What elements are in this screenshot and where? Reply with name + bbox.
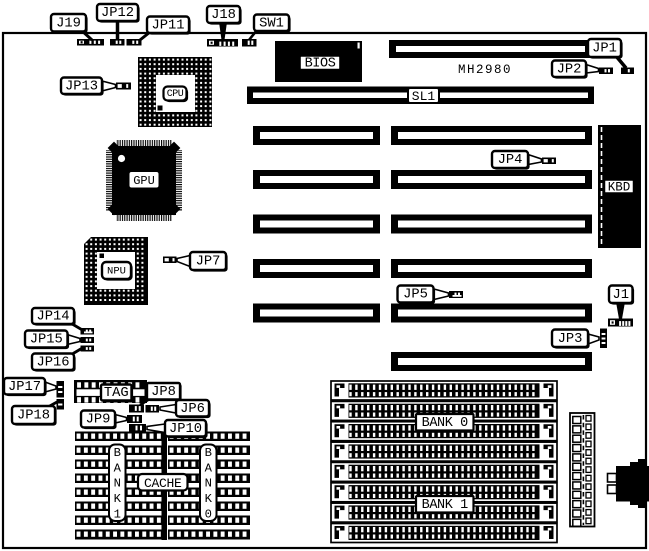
svg-text:JP16: JP16 xyxy=(36,355,69,370)
svg-text:J1: J1 xyxy=(612,288,629,303)
svg-text:J18: J18 xyxy=(211,8,236,23)
svg-text:JP14: JP14 xyxy=(36,310,69,325)
svg-text:NPU: NPU xyxy=(107,265,126,277)
svg-text:SL1: SL1 xyxy=(412,89,436,104)
svg-text:JP11: JP11 xyxy=(151,18,184,33)
svg-text:MH2980: MH2980 xyxy=(458,63,512,77)
svg-text:BIOS: BIOS xyxy=(305,56,336,71)
svg-text:SW1: SW1 xyxy=(259,16,284,31)
svg-text:TAG: TAG xyxy=(104,386,129,401)
svg-text:A: A xyxy=(205,461,213,475)
svg-text:BANK 0: BANK 0 xyxy=(422,416,469,431)
svg-text:JP2: JP2 xyxy=(557,62,582,77)
svg-text:JP4: JP4 xyxy=(498,153,523,168)
svg-text:J19: J19 xyxy=(56,16,81,31)
svg-text:N: N xyxy=(205,477,212,491)
svg-text:JP18: JP18 xyxy=(17,409,50,424)
svg-text:JP17: JP17 xyxy=(8,380,41,395)
svg-text:JP8: JP8 xyxy=(151,385,176,400)
svg-text:JP10: JP10 xyxy=(169,422,202,437)
svg-text:JP6: JP6 xyxy=(180,402,205,417)
svg-text:JP5: JP5 xyxy=(403,288,428,303)
svg-text:JP9: JP9 xyxy=(86,413,111,428)
svg-text:1: 1 xyxy=(114,507,121,521)
svg-text:BANK 1: BANK 1 xyxy=(422,498,469,513)
svg-text:GPU: GPU xyxy=(133,174,155,188)
svg-text:KBD: KBD xyxy=(608,181,631,195)
svg-text:B: B xyxy=(114,446,121,460)
svg-text:JP12: JP12 xyxy=(101,6,134,21)
svg-text:A: A xyxy=(114,461,122,475)
svg-text:JP15: JP15 xyxy=(30,333,63,348)
svg-text:N: N xyxy=(114,477,121,491)
svg-text:JP7: JP7 xyxy=(196,255,221,270)
svg-text:0: 0 xyxy=(205,507,212,521)
svg-text:JP1: JP1 xyxy=(592,42,617,57)
svg-text:CPU: CPU xyxy=(167,89,184,100)
svg-text:B: B xyxy=(205,446,212,460)
svg-text:JP3: JP3 xyxy=(558,332,583,347)
svg-text:CACHE: CACHE xyxy=(144,476,182,491)
svg-text:JP13: JP13 xyxy=(65,79,98,94)
svg-text:K: K xyxy=(205,492,213,506)
svg-text:K: K xyxy=(114,492,122,506)
